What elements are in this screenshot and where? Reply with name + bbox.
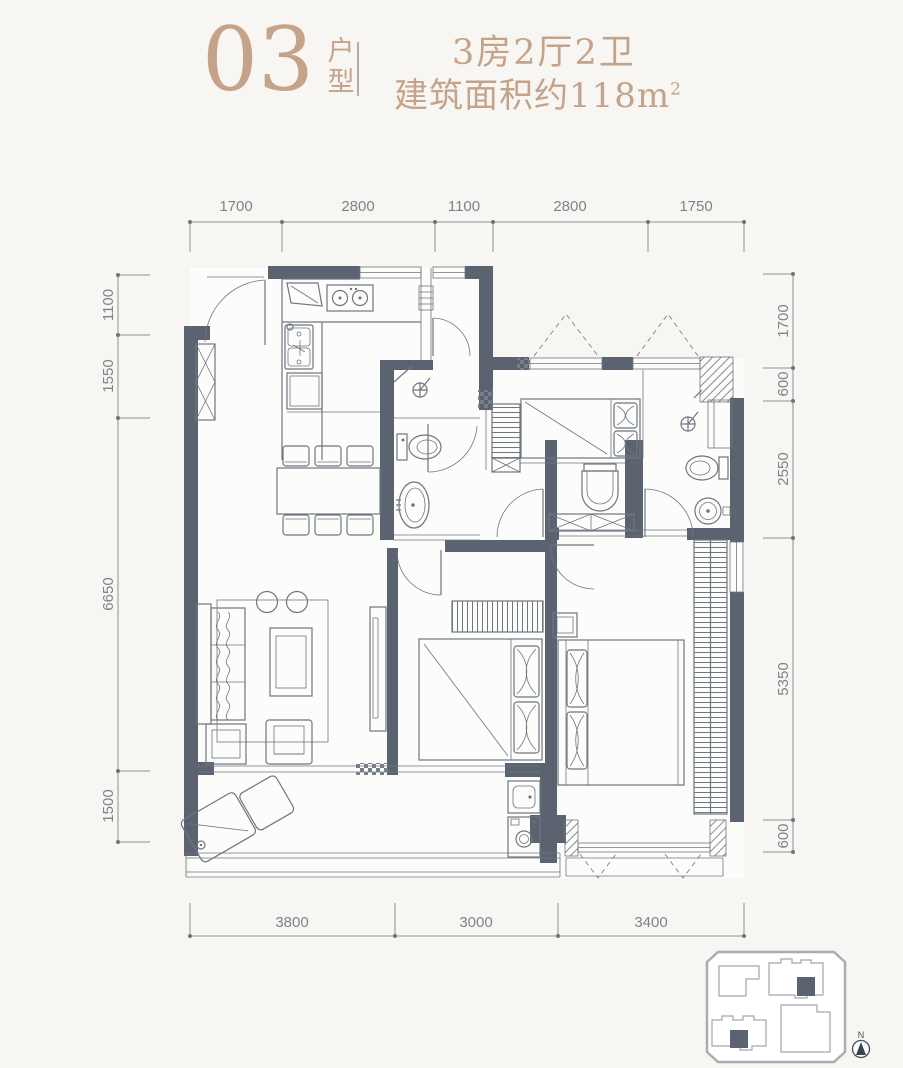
dim-left-3: 6650 [100, 577, 117, 610]
dim-right-1: 1700 [775, 304, 792, 337]
keymap-building-4 [781, 1005, 830, 1052]
dimension-left: 1100 1550 6650 1500 [100, 273, 150, 844]
key-map [707, 952, 845, 1062]
floorplan-page: 03 户型 3房2厅2卫 建筑面积约118m2 [0, 0, 903, 1068]
dimension-bottom: 3800 3000 3400 [188, 903, 746, 938]
compass: N [853, 1030, 870, 1058]
north-label: N [858, 1030, 865, 1040]
dim-right-4: 5350 [775, 662, 792, 695]
dim-right-2: 600 [775, 371, 792, 396]
keymap-unit-highlight-2 [730, 1030, 748, 1048]
master-wardrobe [694, 540, 727, 814]
bedroom2-wardrobe [452, 601, 543, 632]
floorplan-drawing: 1700 2800 1100 2800 1750 1100 1550 6650 … [0, 0, 903, 1068]
dim-left-2: 1550 [100, 359, 117, 392]
keymap-unit-highlight-1 [797, 977, 815, 996]
dim-top-4: 2800 [553, 198, 586, 215]
dim-top-2: 2800 [341, 198, 374, 215]
dim-right-5: 600 [775, 823, 792, 848]
dim-right-3: 2550 [775, 452, 792, 485]
dim-bottom-1: 3800 [275, 914, 308, 931]
dim-bottom-3: 3400 [634, 914, 667, 931]
dim-top-5: 1750 [679, 198, 712, 215]
floor-underlay [190, 268, 744, 878]
dim-top-1: 1700 [219, 198, 252, 215]
dim-left-4: 1500 [100, 789, 117, 822]
dimension-top: 1700 2800 1100 2800 1750 [188, 198, 746, 252]
dimension-right: 1700 600 2550 5350 600 [763, 272, 795, 854]
dim-left-1: 1100 [100, 289, 117, 321]
dim-top-3: 1100 [448, 198, 480, 215]
dim-bottom-2: 3000 [459, 914, 492, 931]
